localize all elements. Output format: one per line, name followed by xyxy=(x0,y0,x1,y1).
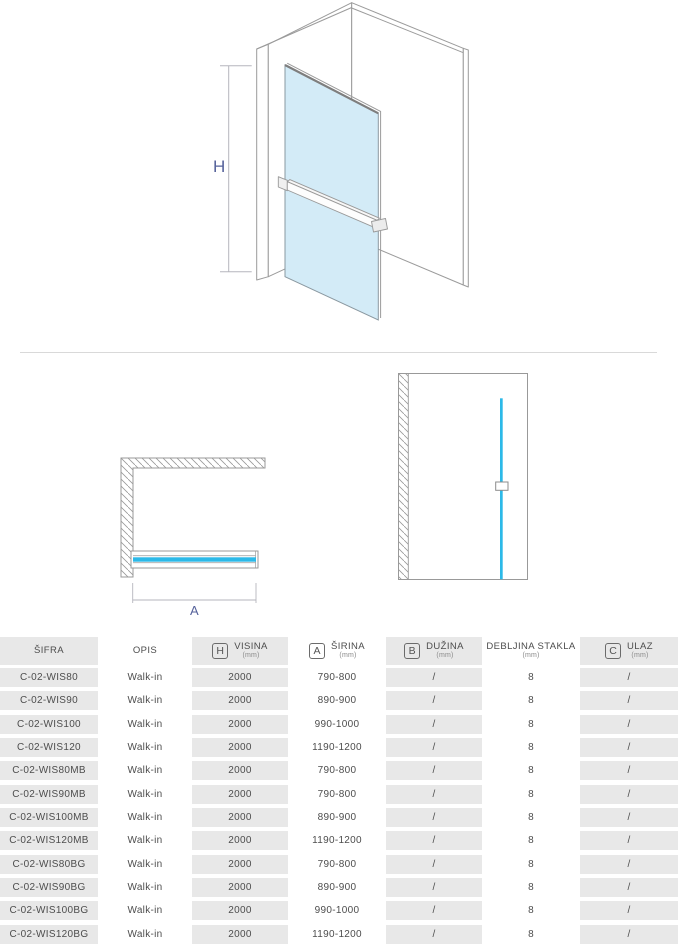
table-cell: Walk-in xyxy=(100,715,190,734)
spec-table-header: ŠIFRAOPISHVISINA(mm)AŠIRINA(mm)BDUŽINA(m… xyxy=(0,637,678,665)
table-cell: / xyxy=(386,761,482,780)
section-divider xyxy=(20,352,657,353)
table-row: C-02-WIS90BGWalk-in2000890-900/8/ xyxy=(0,878,678,897)
table-cell: / xyxy=(580,901,678,920)
table-cell: / xyxy=(386,691,482,710)
table-cell: C-02-WIS80 xyxy=(0,668,98,687)
table-cell: / xyxy=(386,901,482,920)
spec-table-body: C-02-WIS80Walk-in2000790-800/8/C-02-WIS9… xyxy=(0,668,678,944)
table-cell: Walk-in xyxy=(100,901,190,920)
table-cell: 8 xyxy=(484,925,578,944)
header-text: ULAZ(mm) xyxy=(627,642,653,661)
table-cell: 8 xyxy=(484,715,578,734)
table-row: C-02-WIS80Walk-in2000790-800/8/ xyxy=(0,668,678,687)
table-cell: C-02-WIS120 xyxy=(0,738,98,757)
glass-panel-section xyxy=(133,557,256,561)
table-cell: Walk-in xyxy=(100,831,190,850)
table-cell: Walk-in xyxy=(100,785,190,804)
letter-badge: A xyxy=(309,643,325,659)
column-header: ŠIFRA xyxy=(0,637,98,665)
table-cell: 8 xyxy=(484,668,578,687)
column-header: AŠIRINA(mm) xyxy=(290,637,384,665)
table-cell: 2000 xyxy=(192,785,288,804)
opening-outline xyxy=(399,374,528,580)
table-cell: / xyxy=(580,738,678,757)
table-cell: 2000 xyxy=(192,878,288,897)
table-cell: C-02-WIS80BG xyxy=(0,855,98,874)
product-spec-sheet: H A ŠIFRAOPIS xyxy=(0,0,678,948)
table-cell: / xyxy=(386,808,482,827)
table-cell: 2000 xyxy=(192,855,288,874)
table-cell: 1190-1200 xyxy=(290,831,384,850)
table-cell: / xyxy=(386,878,482,897)
table-cell: C-02-WIS100MB xyxy=(0,808,98,827)
table-cell: 890-900 xyxy=(290,878,384,897)
table-cell: 8 xyxy=(484,808,578,827)
table-cell: 8 xyxy=(484,761,578,780)
table-cell: Walk-in xyxy=(100,691,190,710)
table-cell: 2000 xyxy=(192,738,288,757)
table-cell: 790-800 xyxy=(290,855,384,874)
table-row: C-02-WIS100MBWalk-in2000890-900/8/ xyxy=(0,808,678,827)
header-text: DEBLJINA STAKLA(mm) xyxy=(486,642,575,661)
table-row: C-02-WIS120BGWalk-in20001190-1200/8/ xyxy=(0,925,678,944)
table-cell: Walk-in xyxy=(100,878,190,897)
column-header: DEBLJINA STAKLA(mm) xyxy=(484,637,578,665)
table-cell: / xyxy=(580,761,678,780)
table-cell: Walk-in xyxy=(100,668,190,687)
table-cell: 790-800 xyxy=(290,785,384,804)
table-row: C-02-WIS100BGWalk-in2000990-1000/8/ xyxy=(0,901,678,920)
table-cell: / xyxy=(386,785,482,804)
wall-hatched-strip xyxy=(399,374,409,580)
table-cell: 8 xyxy=(484,785,578,804)
table-cell: C-02-WIS90MB xyxy=(0,785,98,804)
table-cell: C-02-WIS120MB xyxy=(0,831,98,850)
table-cell: 8 xyxy=(484,738,578,757)
table-cell: 890-900 xyxy=(290,691,384,710)
table-cell: 2000 xyxy=(192,925,288,944)
table-row: C-02-WIS80MBWalk-in2000790-800/8/ xyxy=(0,761,678,780)
bar-bracket xyxy=(496,482,508,490)
table-cell: 8 xyxy=(484,831,578,850)
column-header: OPIS xyxy=(100,637,190,665)
table-cell: 890-900 xyxy=(290,808,384,827)
header-text: OPIS xyxy=(133,646,157,657)
header-text: VISINA(mm) xyxy=(234,642,268,661)
table-cell: / xyxy=(580,785,678,804)
table-cell: 1190-1200 xyxy=(290,925,384,944)
table-cell: / xyxy=(386,668,482,687)
table-cell: 990-1000 xyxy=(290,901,384,920)
table-cell: / xyxy=(386,855,482,874)
table-cell: 1190-1200 xyxy=(290,738,384,757)
table-cell: 8 xyxy=(484,878,578,897)
table-cell: 8 xyxy=(484,855,578,874)
table-cell: C-02-WIS90BG xyxy=(0,878,98,897)
dimension-h-label: H xyxy=(213,157,225,176)
table-cell: Walk-in xyxy=(100,761,190,780)
table-cell: / xyxy=(580,808,678,827)
table-cell: / xyxy=(580,855,678,874)
letter-badge: B xyxy=(404,643,420,659)
table-cell: / xyxy=(386,738,482,757)
table-cell: C-02-WIS100 xyxy=(0,715,98,734)
isometric-view: H xyxy=(200,0,470,330)
table-cell: / xyxy=(580,715,678,734)
table-row: C-02-WIS90Walk-in2000890-900/8/ xyxy=(0,691,678,710)
table-row: C-02-WIS100Walk-in2000990-1000/8/ xyxy=(0,715,678,734)
table-cell: 8 xyxy=(484,901,578,920)
table-row: C-02-WIS120Walk-in20001190-1200/8/ xyxy=(0,738,678,757)
table-cell: / xyxy=(386,715,482,734)
table-cell: 2000 xyxy=(192,761,288,780)
table-cell: 2000 xyxy=(192,901,288,920)
table-cell: 2000 xyxy=(192,808,288,827)
front-view xyxy=(390,365,540,590)
table-cell: Walk-in xyxy=(100,925,190,944)
table-cell: / xyxy=(580,668,678,687)
table-row: C-02-WIS90MBWalk-in2000790-800/8/ xyxy=(0,785,678,804)
table-cell: 790-800 xyxy=(290,668,384,687)
top-view: A xyxy=(100,430,300,630)
table-cell: 2000 xyxy=(192,668,288,687)
table-cell: 8 xyxy=(484,691,578,710)
header-text: ŠIRINA(mm) xyxy=(331,642,365,661)
column-header: HVISINA(mm) xyxy=(192,637,288,665)
dimension-a-label: A xyxy=(190,603,199,618)
table-cell: 2000 xyxy=(192,691,288,710)
column-header: CULAZ(mm) xyxy=(580,637,678,665)
table-cell: / xyxy=(580,691,678,710)
table-cell: / xyxy=(580,878,678,897)
table-cell: / xyxy=(580,831,678,850)
table-cell: Walk-in xyxy=(100,855,190,874)
table-cell: / xyxy=(386,831,482,850)
table-cell: Walk-in xyxy=(100,738,190,757)
table-cell: 990-1000 xyxy=(290,715,384,734)
table-cell: C-02-WIS100BG xyxy=(0,901,98,920)
table-cell: Walk-in xyxy=(100,808,190,827)
table-cell: / xyxy=(386,925,482,944)
table-row: C-02-WIS120MBWalk-in20001190-1200/8/ xyxy=(0,831,678,850)
table-cell: 790-800 xyxy=(290,761,384,780)
letter-badge: H xyxy=(212,643,228,659)
table-cell: C-02-WIS120BG xyxy=(0,925,98,944)
column-header: BDUŽINA(mm) xyxy=(386,637,482,665)
table-row: C-02-WIS80BGWalk-in2000790-800/8/ xyxy=(0,855,678,874)
table-cell: 2000 xyxy=(192,831,288,850)
header-text: ŠIFRA xyxy=(34,646,64,657)
table-cell: 2000 xyxy=(192,715,288,734)
table-cell: / xyxy=(580,925,678,944)
dimension-a-lines xyxy=(133,583,256,603)
header-text: DUŽINA(mm) xyxy=(426,642,464,661)
table-cell: C-02-WIS80MB xyxy=(0,761,98,780)
letter-badge: C xyxy=(605,643,621,659)
spec-table: ŠIFRAOPISHVISINA(mm)AŠIRINA(mm)BDUŽINA(m… xyxy=(0,637,678,948)
table-cell: C-02-WIS90 xyxy=(0,691,98,710)
